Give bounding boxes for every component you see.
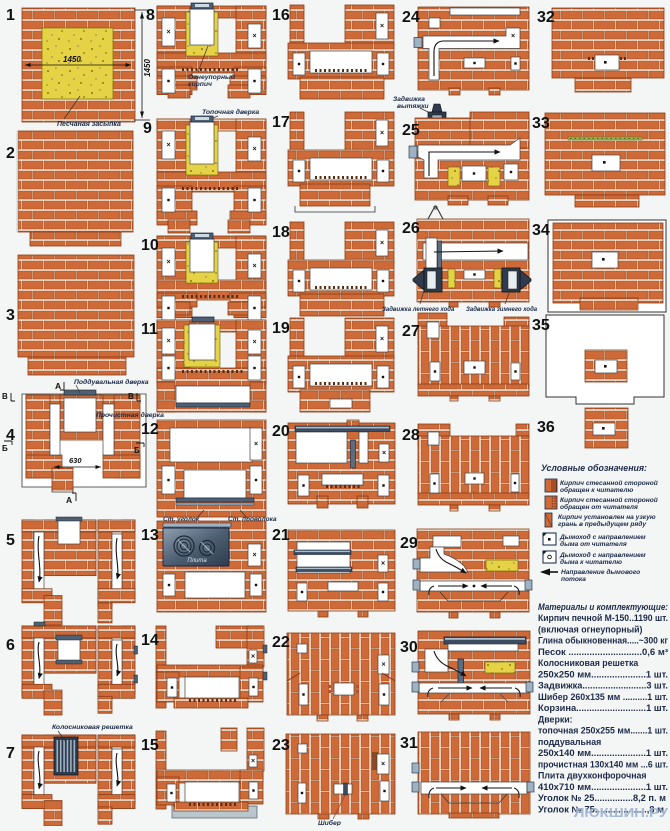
svg-text:Задвижка: Задвижка [393,95,425,103]
svg-text:26: 26 [402,220,420,237]
svg-text:×: × [380,336,384,343]
svg-text:3: 3 [6,307,15,324]
svg-text:×: × [254,441,258,448]
svg-text:Топочная дверка: Топочная дверка [202,108,259,116]
svg-text:410х710 мм....................: 410х710 мм.....................1 шт. [538,782,668,792]
svg-text:1450: 1450 [143,59,152,77]
svg-text:В: В [128,392,134,401]
svg-text:(включая огнеупорный): (включая огнеупорный) [538,624,643,634]
svg-text:Материалы и комплектующие:: Материалы и комплектующие: [538,602,668,612]
svg-text:Шибер: Шибер [318,819,341,826]
svg-text:Б: Б [134,446,140,455]
svg-text:×: × [382,450,386,457]
svg-text:22: 22 [272,634,290,651]
svg-text:Уголок № 25...............8,2: Уголок № 25...............8,2 п. м [538,793,666,803]
svg-text:34: 34 [532,222,550,239]
svg-text:поддувальная: поддувальная [538,737,601,747]
svg-text:×: × [166,259,170,266]
svg-text:35: 35 [532,317,550,334]
svg-text:Корзина.......................: Корзина...........................1 шт. [538,703,668,713]
svg-text:4: 4 [6,427,15,444]
svg-text:×: × [381,561,385,568]
svg-text:13: 13 [141,527,159,544]
svg-text:прочистная 130х140 мм ...6 шт.: прочистная 130х140 мм ...6 шт. [538,759,668,769]
svg-text:×: × [166,142,170,149]
svg-text:Дымоход с направлением: Дымоход с направлением [559,551,646,559]
svg-text:×: × [252,146,256,153]
svg-text:Кирпич печной М-150..1190 шт.: Кирпич печной М-150..1190 шт. [538,613,668,623]
svg-text:10: 10 [141,237,159,254]
svg-text:250х250 мм....................: 250х250 мм.....................1 шт. [538,669,668,679]
svg-text:обращен к читателю: обращен к читателю [560,486,633,494]
svg-text:Дверки:: Дверки: [538,714,573,724]
svg-text:Кирпич установлен на узкую: Кирпич установлен на узкую [558,514,656,521]
svg-text:Направление дымового: Направление дымового [561,568,640,576]
svg-text:36: 36 [537,419,555,436]
svg-text:Поддувальная дверка: Поддувальная дверка [74,378,149,386]
svg-text:12: 12 [141,421,159,438]
svg-text:21: 21 [272,527,290,544]
svg-text:Кирпич стесанной стороной: Кирпич стесанной стороной [560,479,658,487]
svg-text:16: 16 [272,7,290,24]
svg-text:ЛЮКШИН.РУ: ЛЮКШИН.РУ [574,806,668,820]
svg-text:Кирпич стесанной стороной: Кирпич стесанной стороной [560,496,658,504]
svg-text:Дымоход с направлением: Дымоход с направлением [559,533,646,541]
svg-text:Задвижка зимнего хода: Задвижка зимнего хода [466,307,538,313]
svg-text:1: 1 [6,7,15,24]
svg-text:30: 30 [400,639,418,656]
svg-text:грань в предыдущем ряду: грань в предыдущем ряду [558,520,646,528]
svg-text:×: × [380,23,384,30]
svg-text:7: 7 [6,745,15,762]
svg-text:20: 20 [272,423,290,440]
svg-text:дыма к читателю: дыма к читателю [560,558,622,566]
svg-text:33: 33 [532,115,550,132]
svg-text:18: 18 [272,224,290,241]
svg-text:×: × [511,33,515,40]
svg-text:×: × [252,33,256,40]
svg-text:14: 14 [141,632,159,649]
svg-text:вытяжки: вытяжки [397,103,429,110]
svg-text:потока: потока [561,576,586,583]
svg-text:19: 19 [272,320,290,337]
svg-text:×: × [166,29,170,36]
svg-text:8: 8 [146,7,155,24]
svg-text:17: 17 [272,114,290,131]
svg-text:Прочистная дверка: Прочистная дверка [96,411,164,419]
svg-text:А: А [55,381,61,391]
svg-text:1450: 1450 [63,55,81,64]
svg-text:Песчаная засыпка: Песчаная засыпка [57,121,121,128]
svg-text:Глина обыкновенная.....~300 кг: Глина обыкновенная.....~300 кг [538,636,668,646]
svg-text:Колосниковая решетка: Колосниковая решетка [52,724,133,731]
svg-text:дыма от читателя: дыма от читателя [560,540,627,548]
svg-text:×: × [252,552,256,559]
svg-text:Песок ........................: Песок ............................0,6 м³ [538,647,668,657]
svg-text:Задвижка летнего хода: Задвижка летнего хода [382,307,455,313]
svg-text:×: × [380,130,384,137]
svg-text:×: × [381,761,385,768]
svg-text:2: 2 [6,145,15,162]
svg-text:В: В [2,392,8,401]
svg-text:28: 28 [402,427,420,444]
svg-text:Задвижка......................: Задвижка.........................3 шт. [538,681,668,691]
svg-text:обращен от читателя: обращен от читателя [560,503,638,511]
svg-text:6: 6 [6,637,15,654]
svg-text:29: 29 [400,535,418,552]
svg-text:630: 630 [69,456,82,465]
svg-text:×: × [252,339,256,346]
svg-text:Плита двухконфорочная: Плита двухконфорочная [538,771,647,781]
svg-text:9: 9 [143,120,152,137]
svg-text:Огнеупорный: Огнеупорный [188,73,236,81]
svg-text:25: 25 [402,122,420,139]
svg-text:11: 11 [141,321,158,338]
svg-text:Шибер 260х135 мм ..........1 ш: Шибер 260х135 мм ..........1 шт. [538,692,668,702]
svg-text:15: 15 [141,737,159,754]
svg-text:32: 32 [537,9,555,26]
svg-text:Плита: Плита [187,558,207,564]
svg-text:кирпич: кирпич [188,81,212,88]
svg-text:5: 5 [6,532,15,549]
svg-text:×: × [251,758,255,765]
svg-text:Б: Б [2,444,8,453]
svg-text:23: 23 [272,737,290,754]
svg-text:топочная 250х255 мм.......1 шт: топочная 250х255 мм.......1 шт. [538,726,668,736]
svg-text:×: × [380,240,384,247]
svg-text:Колосниковая решетка: Колосниковая решетка [538,658,638,668]
svg-text:24: 24 [402,9,420,26]
svg-text:Условные обозначения:: Условные обозначения: [541,463,647,474]
svg-text:×: × [252,263,256,270]
svg-text:250х140 мм....................: 250х140 мм.....................1 шт. [538,748,668,758]
svg-text:31: 31 [400,735,418,752]
svg-text:×: × [251,654,255,661]
svg-text:27: 27 [402,323,420,340]
svg-text:×: × [381,662,385,669]
svg-text:×: × [166,338,170,345]
svg-text:А: А [66,495,72,505]
